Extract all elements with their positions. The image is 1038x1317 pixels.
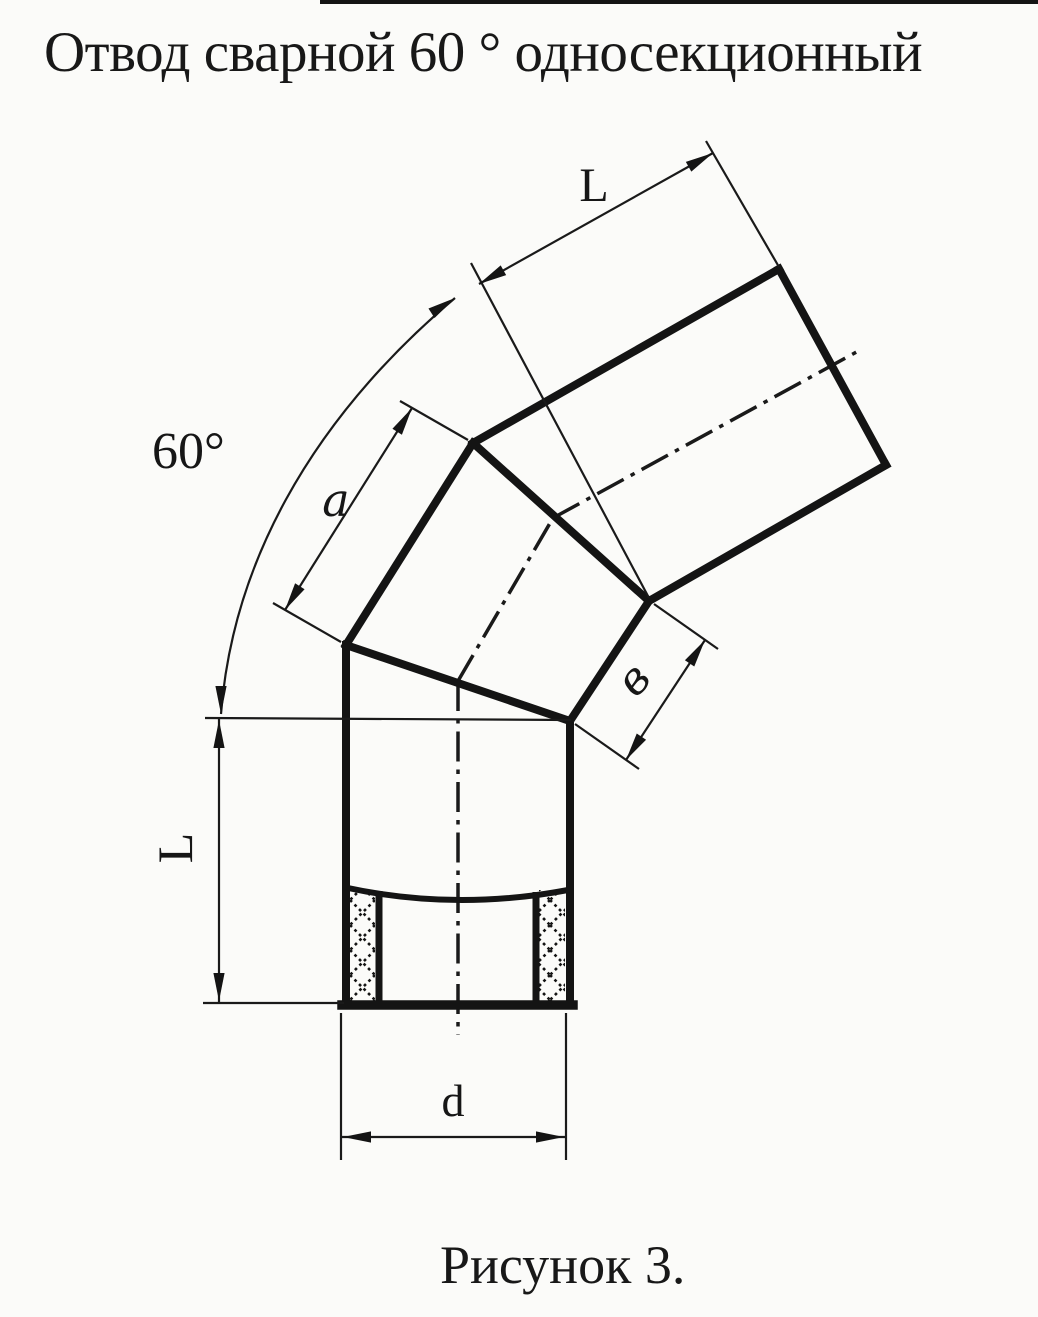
extension-line [400,401,468,440]
angle-label: 60° [152,423,225,480]
dimension-label-L-top: L [579,159,608,212]
extension-line [273,603,341,642]
dimension-d: d [341,1013,566,1160]
gasket-hatch-left [350,889,375,1002]
dimension-label-d: d [442,1075,465,1126]
middle-section-outer-edge [570,601,649,721]
middle-section-inner-edge [346,443,473,645]
gasket-hatch-right [539,890,565,1002]
extension-line [654,604,718,649]
dimension-label-a: а [322,473,349,527]
center-lines [458,349,862,1035]
pipe-outline [342,269,886,1005]
scan-artifact-bar [320,0,1038,4]
top-pipe-end-edge [779,269,886,465]
figure-caption: Рисунок 3. [440,1234,685,1296]
scanned-drawing-page: Отвод сварной 60 ° односекционный [0,0,1038,1317]
top-pipe-upper-edge [473,269,779,443]
extension-line [706,141,779,267]
dimension-label-L-left: L [147,833,203,864]
extension-line [575,724,639,769]
axis-middle-section [458,518,553,681]
elbow-technical-drawing: L 60° а в [0,0,1038,1317]
dimension-angle-60: 60° [152,293,571,720]
dimension-L-top: L [471,141,779,598]
dimension-L-left: L [147,719,344,1003]
top-pipe-lower-edge [649,465,886,601]
angle-leg-horizontal-line [205,718,571,720]
weld-seam-2 [473,443,649,601]
dimension-label-b: в [606,653,661,706]
